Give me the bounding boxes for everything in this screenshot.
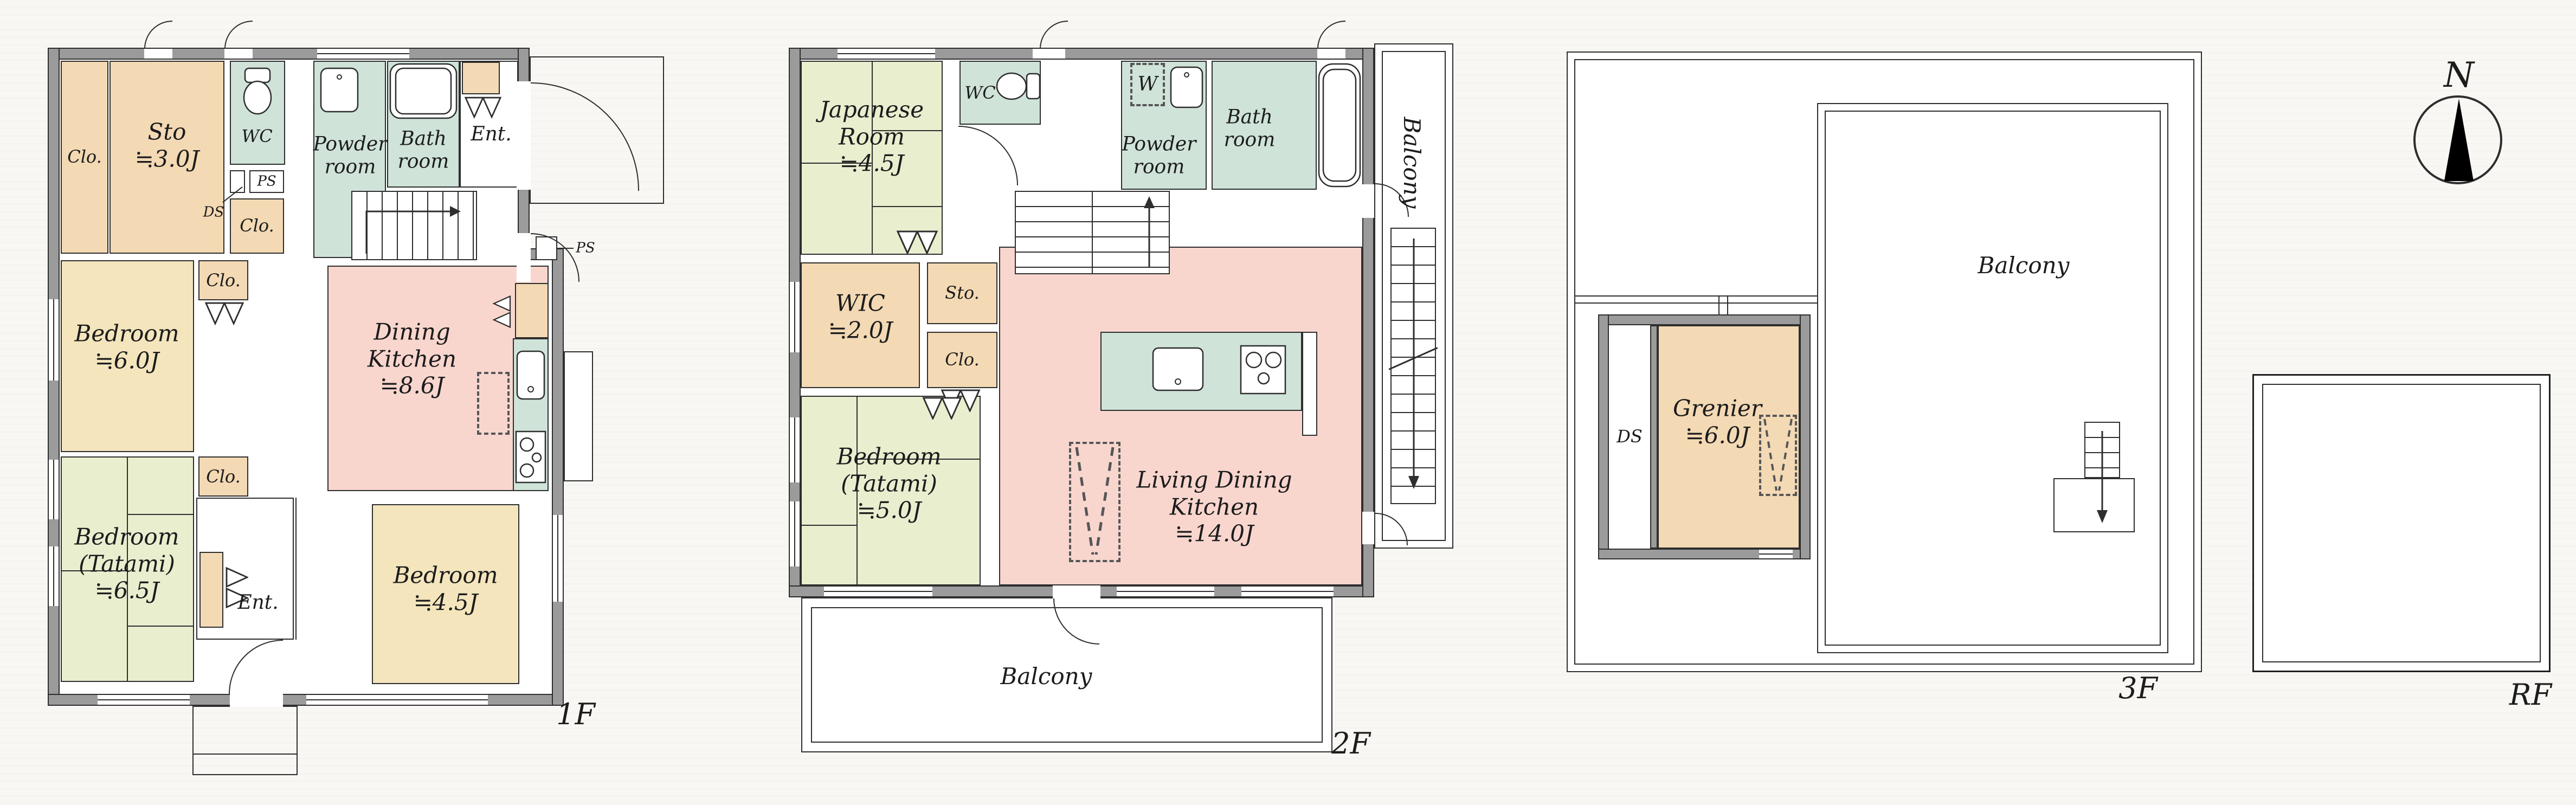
room-label: Clo. [67, 147, 102, 168]
stair-arrow-icon [353, 193, 473, 258]
stair-divider [1092, 191, 1093, 274]
room-label: Dining Kitchen ≒8.6J [368, 319, 456, 400]
room-label: Sto ≒3.0J [135, 118, 199, 172]
3f-railing-line [1574, 295, 1817, 297]
grenier-wall-right [1800, 314, 1811, 559]
room-label: Japanese Room ≒4.5J [820, 96, 924, 177]
window [48, 460, 60, 519]
rf-inner-line [2262, 384, 2541, 662]
vent-stub-line [1727, 295, 1728, 314]
room-label: Powder room [313, 133, 388, 179]
stair-arrow-icon [2087, 426, 2117, 526]
room-label: Clo. [240, 216, 274, 236]
stove-icon [1240, 345, 1286, 395]
kitchen-cabinet [515, 283, 549, 338]
island-sink-icon [1152, 347, 1204, 391]
window [1117, 585, 1214, 597]
tatami-line [127, 626, 194, 627]
grenier-opening [1759, 549, 1793, 559]
grenier-wall-top [1598, 314, 1811, 325]
1f-wall-right-lower [552, 248, 564, 706]
room-label: Grenier ≒6.0J [1673, 395, 1762, 448]
floor-label-2f: 2F [1331, 726, 1370, 761]
window [48, 299, 60, 381]
shoe-cabinet [462, 62, 500, 94]
ladder-v-icon [1759, 415, 1797, 496]
room-label: PS [576, 240, 595, 257]
ladder-v-icon [1069, 442, 1120, 562]
room-label: WC [241, 126, 272, 147]
grenier-wall-left [1598, 314, 1609, 559]
room-label: DS [203, 204, 224, 221]
room-label: WIC ≒2.0J [828, 289, 893, 343]
door-gap [517, 81, 531, 190]
door-gap [1362, 184, 1374, 218]
door-gap [1033, 49, 1065, 59]
room-label: Bedroom ≒6.0J [74, 320, 179, 373]
door-gap [144, 49, 172, 59]
window [789, 501, 801, 566]
counter-return [1302, 332, 1317, 436]
shoe-cabinet [199, 552, 223, 628]
room-label: DS [1617, 427, 1643, 447]
compass-needle-icon [2444, 99, 2474, 181]
balcony-label: Balcony [1398, 117, 1425, 209]
toilet-icon [242, 67, 273, 116]
folding-door-icon [465, 95, 501, 119]
room-label: Bedroom (Tatami) ≒5.0J [836, 443, 941, 524]
3f-railing-line [1574, 302, 1817, 304]
door-gap [224, 49, 253, 59]
window [317, 48, 409, 60]
door-gap [1053, 585, 1100, 598]
room-label: Powder room [1122, 133, 1196, 179]
room-label: Bedroom ≒4.5J [393, 562, 498, 615]
room-label: Clo. [945, 350, 980, 370]
tatami-line [127, 514, 194, 515]
bottom-porch-outline [192, 706, 298, 775]
refrigerator-space [477, 372, 510, 435]
folding-door-icon [896, 230, 939, 254]
room-label: Sto. [945, 283, 980, 304]
window [98, 694, 190, 706]
door-gap [517, 233, 531, 282]
stove-icon [515, 430, 546, 484]
floor-label-3f: 3F [2118, 671, 2158, 706]
window [48, 546, 60, 606]
1f-wall-top [48, 48, 530, 60]
window [552, 515, 564, 602]
door-gap [230, 693, 283, 707]
window [789, 282, 801, 352]
balcony-label: Balcony [1978, 252, 2070, 279]
sink-icon [320, 67, 359, 113]
room-label: Clo. [206, 271, 241, 291]
stair-arrow-icon [1133, 194, 1165, 273]
door-gap [1317, 49, 1345, 59]
grenier-divider-wall [1650, 325, 1658, 549]
window [838, 48, 935, 60]
floorplan-canvas: Clo. Sto ≒3.0J WC PS DS Clo. Powder room… [0, 0, 2576, 805]
room-label: PS [257, 173, 276, 190]
window [824, 585, 932, 597]
room-label: Bath room [1224, 106, 1276, 152]
tatami-line [801, 525, 856, 526]
entrance-step-line [295, 498, 297, 640]
room-label: Clo. [206, 467, 241, 487]
compass-north-label: N [2444, 55, 2474, 96]
window [379, 694, 488, 706]
toilet-icon [995, 70, 1041, 102]
room-label: W [1137, 73, 1157, 96]
room-label: Ent. [237, 591, 278, 614]
sink-icon [1170, 66, 1203, 108]
stair-arrow-icon [1398, 233, 1430, 493]
porch-step-line [192, 754, 298, 755]
bay-window [564, 351, 593, 481]
folding-door-icon [205, 301, 244, 325]
kitchen-sink-icon [516, 350, 545, 400]
bathtub-icon [1318, 63, 1361, 188]
folding-door-icon [920, 397, 964, 420]
floor-label-1f: 1F [556, 697, 595, 732]
entrance-step-line [196, 639, 294, 640]
room-label: Bath room [398, 128, 449, 174]
bathtub-icon [389, 63, 458, 119]
balcony-label: Balcony [1001, 663, 1092, 690]
room-label: WC [964, 83, 995, 104]
room-label: Living Dining Kitchen ≒14.0J [1136, 467, 1292, 548]
tatami-line [872, 206, 943, 207]
window [789, 417, 801, 482]
3f-balcony-inner-line [1825, 111, 2161, 646]
floor-label-rf: RF [2509, 678, 2552, 712]
room-label: Ent. [471, 123, 511, 146]
window [1241, 585, 1334, 597]
folding-door-icon [490, 295, 514, 328]
vent-stub-line [1718, 295, 1720, 314]
room-label: Bedroom (Tatami) ≒6.5J [74, 524, 179, 604]
door-gap [1362, 512, 1374, 544]
